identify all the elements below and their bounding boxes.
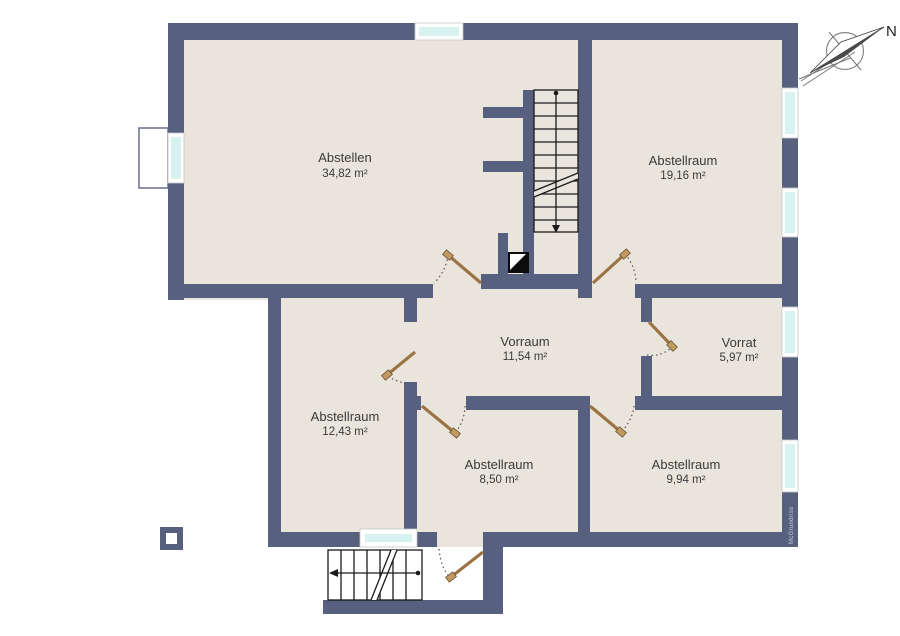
room-name-abstellen: Abstellen [318,150,371,165]
window-right-2 [782,188,798,237]
room-name-abstellraum-sw: Abstellraum [311,409,380,424]
room-area-abstellen: 34,82 m² [322,168,368,180]
room-area-abstellraum-sw: 12,43 m² [322,426,368,438]
room-area-abstellraum-s: 8,50 m² [480,474,519,486]
room-area-abstellraum-se: 9,94 m² [667,474,706,486]
chimney-symbol [160,527,183,550]
room-name-abstellraum-s: Abstellraum [465,457,534,472]
floor-plan-svg: N Abstellen 34,82 m² Abstellraum 19,16 m… [0,0,900,636]
light-well [139,128,168,188]
room-name-vorrat: Vorrat [722,335,757,350]
room-area-vorraum: 11,54 m² [503,351,548,363]
room-area-abstellraum-ne: 19,16 m² [660,170,706,182]
room-name-abstellraum-se: Abstellraum [652,457,721,472]
room-name-abstellraum-ne: Abstellraum [649,153,718,168]
north-label: N [886,23,897,40]
watermark-text: McGrundriss [789,507,795,544]
window-right-3 [782,307,798,357]
window-bottom [360,529,417,547]
north-arrow: N [799,23,897,86]
window-right-4 [782,440,798,492]
window-right-1 [782,88,798,138]
room-name-vorraum: Vorraum [500,334,549,349]
window-left [168,133,184,183]
room-area-vorrat: 5,97 m² [720,352,759,364]
floor-plan: N Abstellen 34,82 m² Abstellraum 19,16 m… [0,0,900,636]
window-top [415,23,463,40]
entrance-marker [508,252,529,273]
